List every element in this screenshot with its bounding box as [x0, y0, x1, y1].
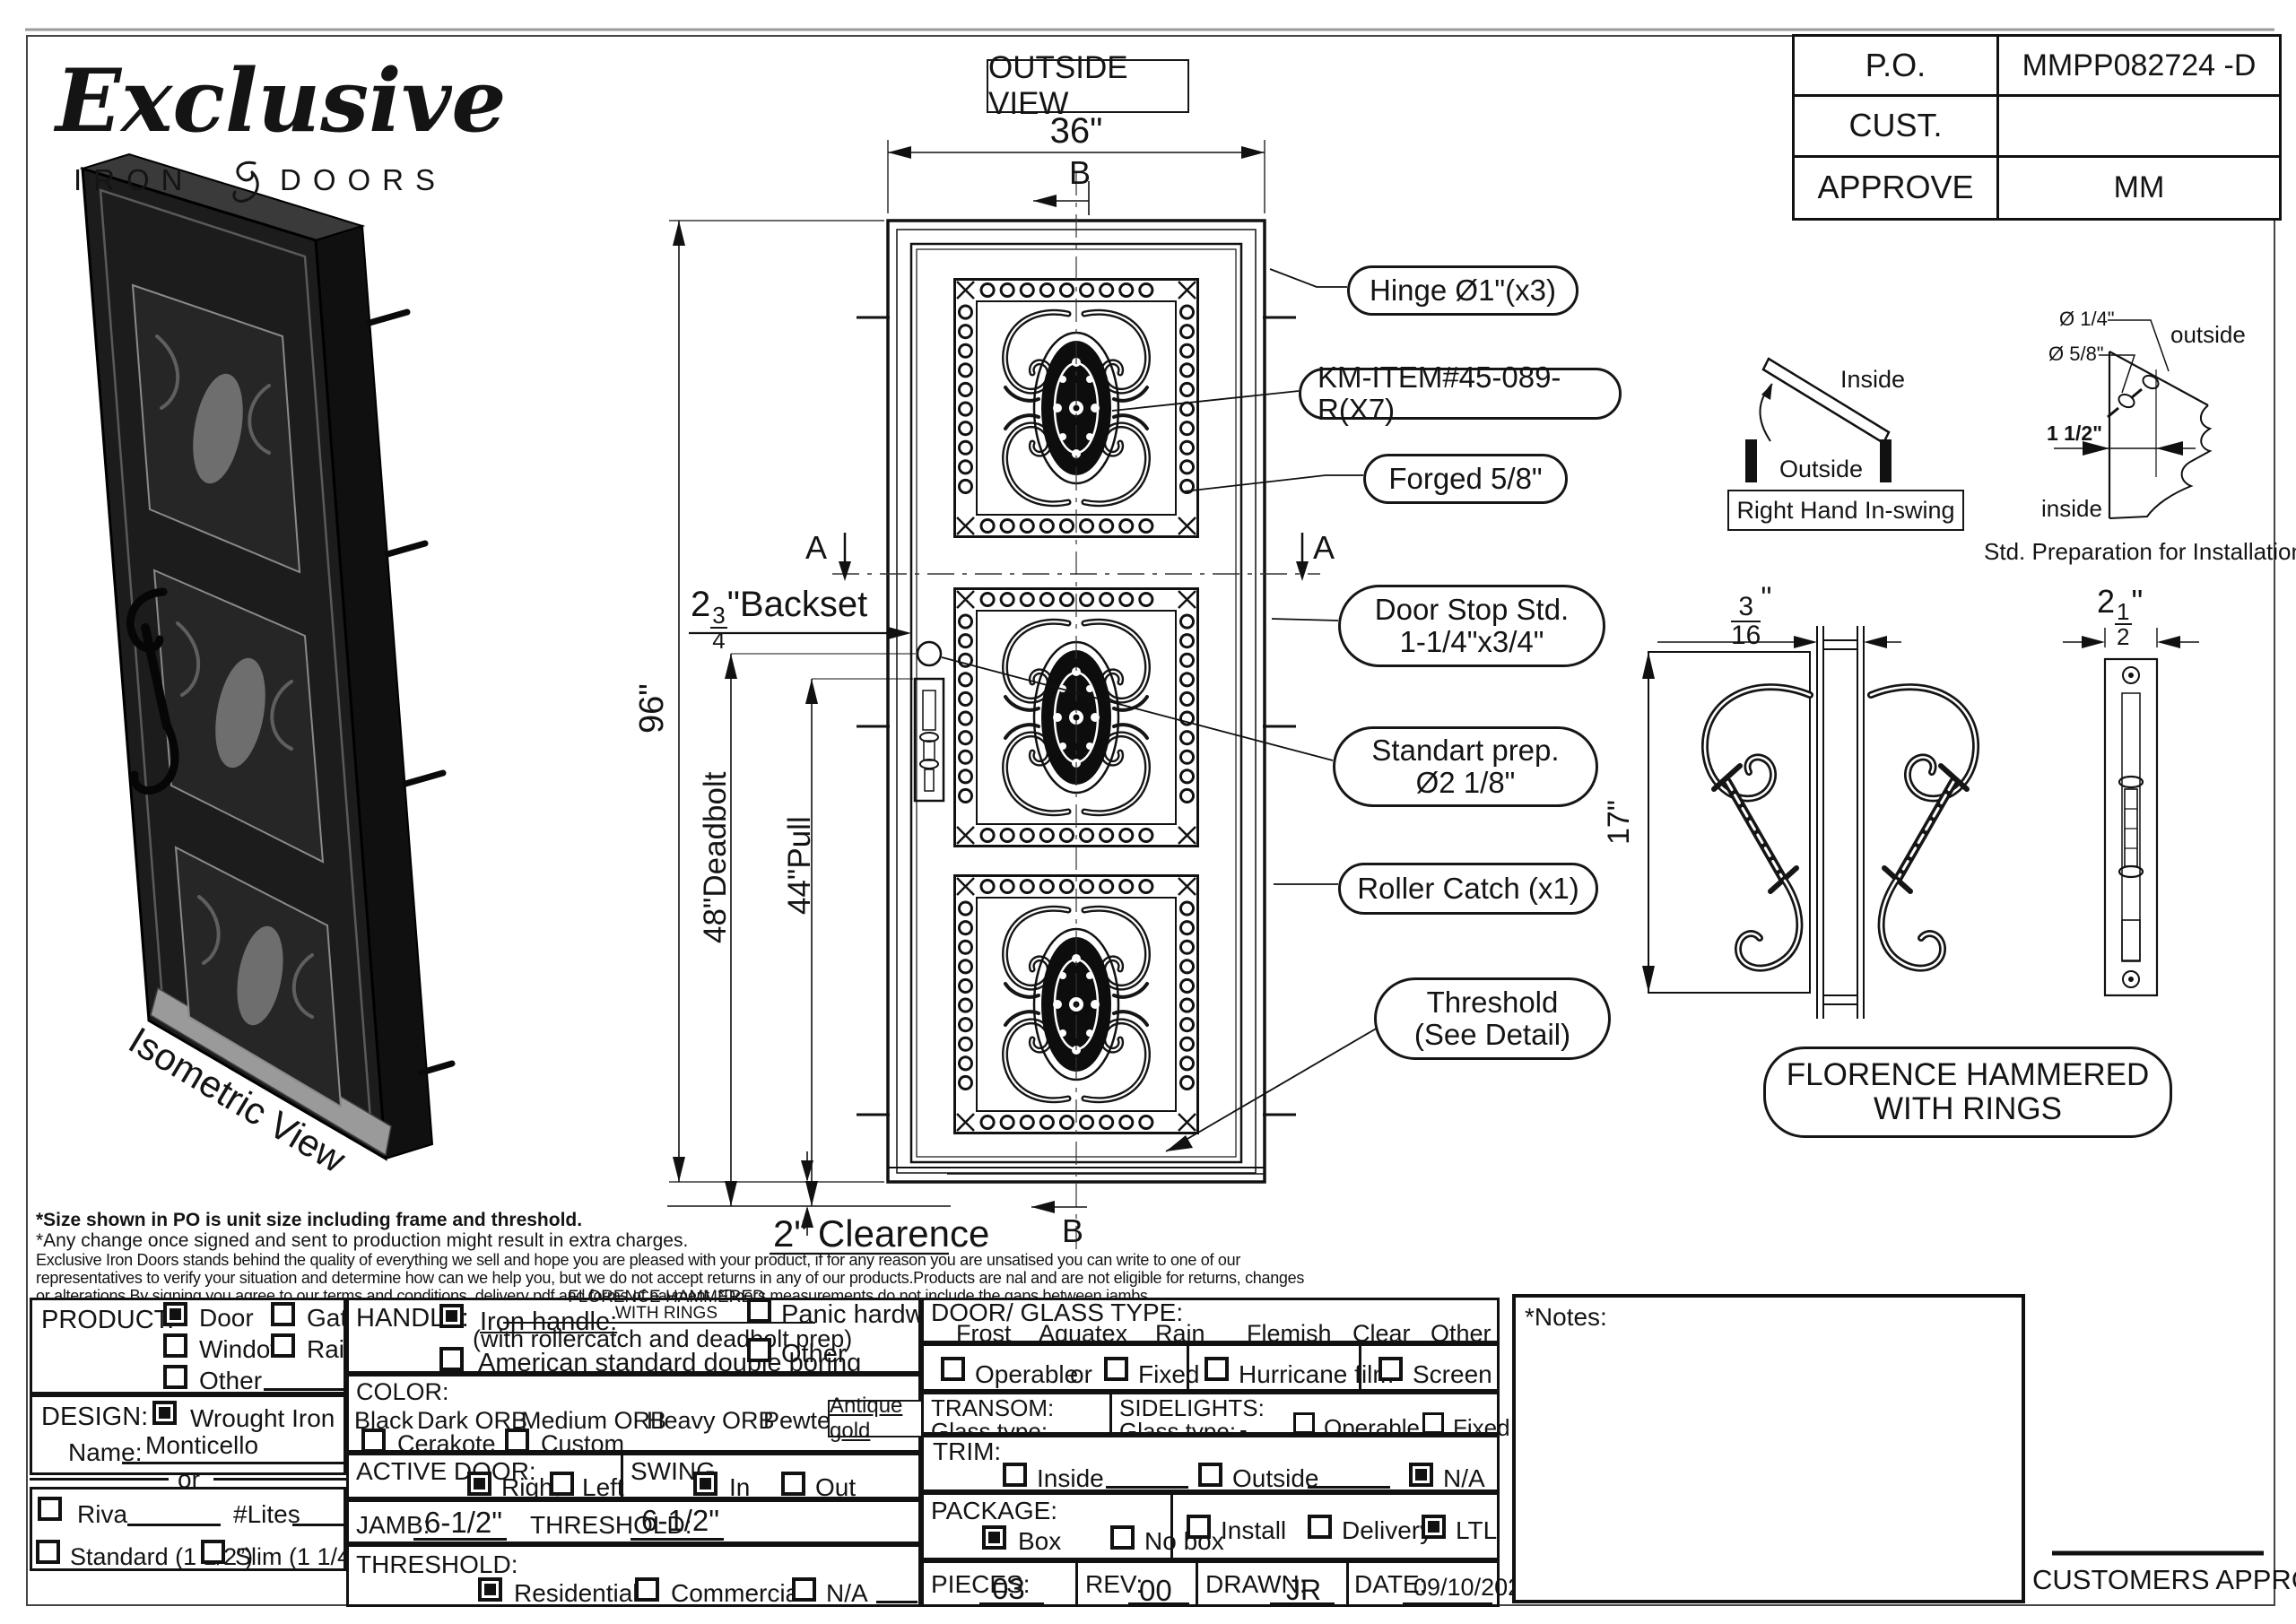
handle-section: HANDLE: Iron handle: FLORENCE HAMMERED W…	[346, 1298, 921, 1374]
pieces-input-line	[979, 1602, 1044, 1605]
handle-height-dim: 17"	[1602, 800, 1637, 845]
design-section: DESIGN: Wrought Iron Name: Monticello	[30, 1394, 346, 1475]
swing-label: Right Hand In-swing	[1727, 490, 1964, 531]
glass-operable-label: Operable	[975, 1360, 1078, 1389]
cust-label: CUST.	[1795, 97, 1999, 157]
threshold-na-label: N/A	[826, 1579, 868, 1608]
threshold-section: THRESHOLD: Residential Commercial N/A	[346, 1544, 921, 1607]
product-window-checkbox[interactable]	[163, 1333, 187, 1358]
approval-signature-field[interactable]	[2052, 1524, 2264, 1553]
swing-in-label: In	[729, 1473, 750, 1502]
trim-section: TRIM: Inside Outside N/A	[921, 1435, 1500, 1492]
trim-na-label: N/A	[1443, 1464, 1485, 1493]
hurricane-checkbox[interactable]	[1205, 1357, 1229, 1381]
threshold-na-checkbox[interactable]	[792, 1577, 816, 1602]
trim-outside-input[interactable]	[1308, 1486, 1390, 1489]
trim-outside-checkbox[interactable]	[1198, 1463, 1222, 1487]
pull-dim: 44"Pull	[782, 816, 818, 915]
product-other-label: Other	[199, 1367, 262, 1395]
swing-inside-label: Inside	[1840, 366, 1905, 394]
jamb-label: JAMB:	[356, 1511, 430, 1540]
lites-label: #Lites	[233, 1500, 300, 1529]
product-section: PRODUCT: Door Gate Window Railling Other	[30, 1298, 346, 1394]
deadbolt-prep	[918, 642, 941, 665]
riva-checkbox[interactable]	[38, 1497, 62, 1521]
design-wrought-checkbox[interactable]	[152, 1401, 177, 1425]
swing-out-checkbox[interactable]	[781, 1472, 805, 1496]
design-name-value[interactable]: Monticello	[145, 1431, 258, 1460]
po-table: P.O. MMPP082724 -D CUST. APPROVE MM	[1792, 34, 2282, 221]
width-dim: 36"	[1040, 111, 1112, 152]
prep-dia2: Ø 5/8"	[2048, 343, 2104, 366]
jamb-value[interactable]: 6-1/2"	[424, 1506, 502, 1540]
transom-sidelights-section: TRANSOM: Glass type: SIDELIGHTS: Glass t…	[921, 1392, 1500, 1435]
package-box-checkbox[interactable]	[982, 1525, 1006, 1550]
product-other-checkbox[interactable]	[163, 1365, 187, 1389]
deadbolt-dim: 48"Deadbolt	[698, 772, 734, 943]
rev-input-line	[1128, 1602, 1189, 1605]
disclaimer-line: representatives to verify your situation…	[36, 1270, 1304, 1286]
product-railling-checkbox[interactable]	[271, 1333, 295, 1358]
height-dim: 96"	[633, 683, 672, 734]
glass-config-section: Operable or Fixed Hurricane film Screen	[921, 1343, 1500, 1392]
meta-section: PIECES: 03 REV: 00 DRAWN: JR DATE: 09/10…	[921, 1560, 1500, 1607]
divider	[1346, 1563, 1349, 1604]
divider	[1109, 1394, 1112, 1432]
section-b-bottom: B	[1062, 1212, 1083, 1250]
swing-in-checkbox[interactable]	[693, 1472, 717, 1496]
package-ltl-label: LTL	[1456, 1516, 1497, 1545]
divider	[30, 1478, 169, 1481]
package-delivery-checkbox[interactable]	[1308, 1515, 1332, 1539]
prep-inside: inside	[2041, 495, 2102, 523]
callout-hinge: Hinge Ø1"(x3)	[1347, 265, 1578, 316]
design-wrought-label: Wrought Iron	[190, 1404, 335, 1433]
sidelights-operable-checkbox[interactable]	[1293, 1412, 1315, 1434]
color-opt-heavyorb[interactable]: Heavy ORB	[647, 1407, 775, 1435]
isometric-door	[83, 154, 452, 1159]
handle-american-checkbox[interactable]	[439, 1347, 464, 1371]
color-selected[interactable]: Antique gold	[828, 1400, 926, 1437]
lites-input[interactable]	[292, 1524, 344, 1526]
package-delivery-label: Delivery	[1342, 1516, 1432, 1545]
riva-input[interactable]	[127, 1524, 221, 1526]
disclaimer-line: Exclusive Iron Doors stands behind the q…	[36, 1252, 1240, 1268]
view-title: OUTSIDE VIEW	[987, 59, 1189, 113]
po-value[interactable]: MMPP082724 -D	[1999, 37, 2279, 97]
standard-checkbox[interactable]	[36, 1540, 60, 1564]
active-right-checkbox[interactable]	[467, 1472, 491, 1496]
jamb-threshold-value[interactable]: 6-1/2"	[641, 1504, 719, 1538]
threshold-residential-label: Residential	[514, 1579, 639, 1608]
package-nobox-label: No box	[1144, 1527, 1224, 1556]
active-left-checkbox[interactable]	[550, 1472, 574, 1496]
riva-label: Riva	[77, 1500, 127, 1529]
handle-panic-checkbox[interactable]	[747, 1298, 771, 1323]
jamb-section: JAMB: 6-1/2" THRESHOLD: 6-1/2"	[346, 1499, 921, 1544]
product-label: PRODUCT:	[41, 1306, 174, 1335]
glass-type-section: DOOR/ GLASS TYPE: Frost Aquatex Rain Fle…	[921, 1298, 1500, 1343]
notes-label: *Notes:	[1525, 1303, 1607, 1332]
glass-fixed-checkbox[interactable]	[1104, 1357, 1128, 1381]
spec-sheet: Exclusive IRON DOORS P.O. MMPP082724 -D …	[0, 0, 2296, 1624]
handle-detail	[1642, 626, 2199, 1019]
approve-value[interactable]: MM	[1999, 158, 2279, 218]
logo-tagline-right: DOORS	[280, 163, 447, 197]
design-label: DESIGN:	[41, 1403, 148, 1432]
threshold-input-line	[631, 1538, 724, 1541]
threshold-residential-checkbox[interactable]	[478, 1577, 502, 1602]
threshold-na-input[interactable]	[876, 1601, 918, 1603]
threshold-commercial-label: Commercial	[671, 1579, 804, 1608]
threshold-label: THRESHOLD:	[356, 1550, 517, 1579]
trim-na-checkbox[interactable]	[1409, 1463, 1433, 1487]
disclaimer-line: *Any change once signed and sent to prod…	[36, 1231, 688, 1250]
section-a-left: A	[805, 529, 827, 567]
design-name-input	[122, 1462, 348, 1464]
sidelights-fixed-checkbox[interactable]	[1422, 1412, 1444, 1434]
trim-inside-input[interactable]	[1106, 1486, 1188, 1489]
callout-door-stop: Door Stop Std.1-1/4"x3/4"	[1338, 585, 1605, 667]
color-section: COLOR: Black Dark ORB Medium ORB Heavy O…	[346, 1374, 921, 1453]
color-label: COLOR:	[356, 1378, 449, 1406]
handle-name-pill: FLORENCE HAMMEREDWITH RINGS	[1763, 1046, 2172, 1138]
prep-outside: outside	[2170, 321, 2246, 349]
handle-gap-dim: 316"	[1731, 581, 1771, 649]
rev-label: REV:	[1085, 1570, 1143, 1599]
clearance-dim: 2" Clearence	[773, 1212, 989, 1255]
trim-label: TRIM:	[933, 1437, 1001, 1466]
standard-label: Standard (1 1/2”)	[70, 1543, 253, 1571]
trim-inside-label: Inside	[1037, 1464, 1104, 1493]
po-label: P.O.	[1795, 37, 1999, 97]
outside-view-door	[832, 172, 1320, 1257]
handle-other-label: Other	[781, 1340, 847, 1369]
handle-width-dim: 212"	[2097, 583, 2143, 648]
glass-operable-checkbox[interactable]	[941, 1357, 965, 1381]
callout-km-item: KM-ITEM#45-089-R(X7)	[1299, 368, 1622, 420]
slim-checkbox[interactable]	[201, 1540, 225, 1564]
handle-other-checkbox[interactable]	[747, 1338, 771, 1362]
callout-prep: Standart prep.Ø2 1/8"	[1333, 726, 1598, 807]
callout-threshold: Threshold(See Detail)	[1374, 977, 1611, 1060]
section-b-top: B	[1069, 154, 1091, 192]
logo-scroll-icon	[228, 158, 267, 204]
logo-wordmark: Exclusive	[56, 50, 507, 152]
jamb-input-line	[413, 1538, 507, 1541]
glass-fixed-label: Fixed	[1138, 1360, 1199, 1389]
screen-label: Screen	[1413, 1360, 1492, 1389]
color-cerakote-checkbox[interactable]	[361, 1429, 386, 1453]
active-swing-section: ACTIVE DOOR: Right Left SWING In Out	[346, 1453, 921, 1499]
prep-offset: 1 1/2"	[2047, 421, 2102, 446]
active-left-label: Left	[582, 1473, 624, 1502]
logo-tagline-left: IRON	[74, 163, 195, 197]
glass-or-label: or	[1070, 1360, 1092, 1389]
drawn-input-line	[1270, 1602, 1335, 1605]
screen-checkbox[interactable]	[1378, 1357, 1403, 1381]
handle-iron-value2[interactable]: WITH RINGS	[559, 1304, 774, 1324]
divider	[213, 1478, 346, 1481]
handle-iron-checkbox[interactable]	[439, 1304, 464, 1328]
divider	[1196, 1563, 1198, 1604]
cust-value[interactable]	[1999, 97, 2279, 157]
approve-label: APPROVE	[1795, 158, 1999, 218]
package-ltl-checkbox[interactable]	[1422, 1515, 1446, 1539]
package-nobox-checkbox[interactable]	[1110, 1525, 1135, 1550]
section-a-right: A	[1313, 529, 1335, 567]
pieces-value[interactable]: 03	[992, 1572, 1025, 1606]
callout-forged: Forged 5/8"	[1363, 454, 1568, 504]
product-door-checkbox[interactable]	[163, 1302, 187, 1326]
swing-out-label: Out	[815, 1473, 856, 1502]
product-door-label: Door	[199, 1304, 254, 1333]
package-label: PACKAGE:	[931, 1497, 1057, 1525]
swing-outside-label: Outside	[1779, 456, 1863, 483]
trim-outside-label: Outside	[1232, 1464, 1319, 1493]
package-install-checkbox[interactable]	[1187, 1515, 1211, 1539]
package-box-label: Box	[1018, 1527, 1061, 1556]
backset-dim: 234"Backset	[691, 585, 867, 652]
package-section: PACKAGE: Box No box Install Delivery LTL	[921, 1492, 1500, 1560]
threshold-commercial-checkbox[interactable]	[635, 1577, 659, 1602]
customers-approval-label: CUSTOMERS APPROVAL	[2032, 1564, 2274, 1596]
product-gate-checkbox[interactable]	[271, 1302, 295, 1326]
prep-caption: Std. Preparation for Installation	[1984, 538, 2296, 566]
trim-inside-checkbox[interactable]	[1003, 1463, 1027, 1487]
callout-roller: Roller Catch (x1)	[1338, 863, 1598, 915]
notes-section[interactable]: *Notes:	[1512, 1294, 2025, 1603]
divider	[1075, 1563, 1078, 1604]
date-input-line	[1403, 1602, 1492, 1605]
package-install-label: Install	[1221, 1516, 1286, 1545]
hurricane-label: Hurricane film	[1239, 1360, 1394, 1389]
disclaimer-line: *Size shown in PO is unit size including…	[36, 1211, 582, 1229]
prep-dia1: Ø 1/4"	[2059, 308, 2115, 331]
color-custom-checkbox[interactable]	[505, 1429, 529, 1453]
riva-section: Riva #Lites Standard (1 1/2”) Slim (1 1/…	[30, 1487, 346, 1571]
